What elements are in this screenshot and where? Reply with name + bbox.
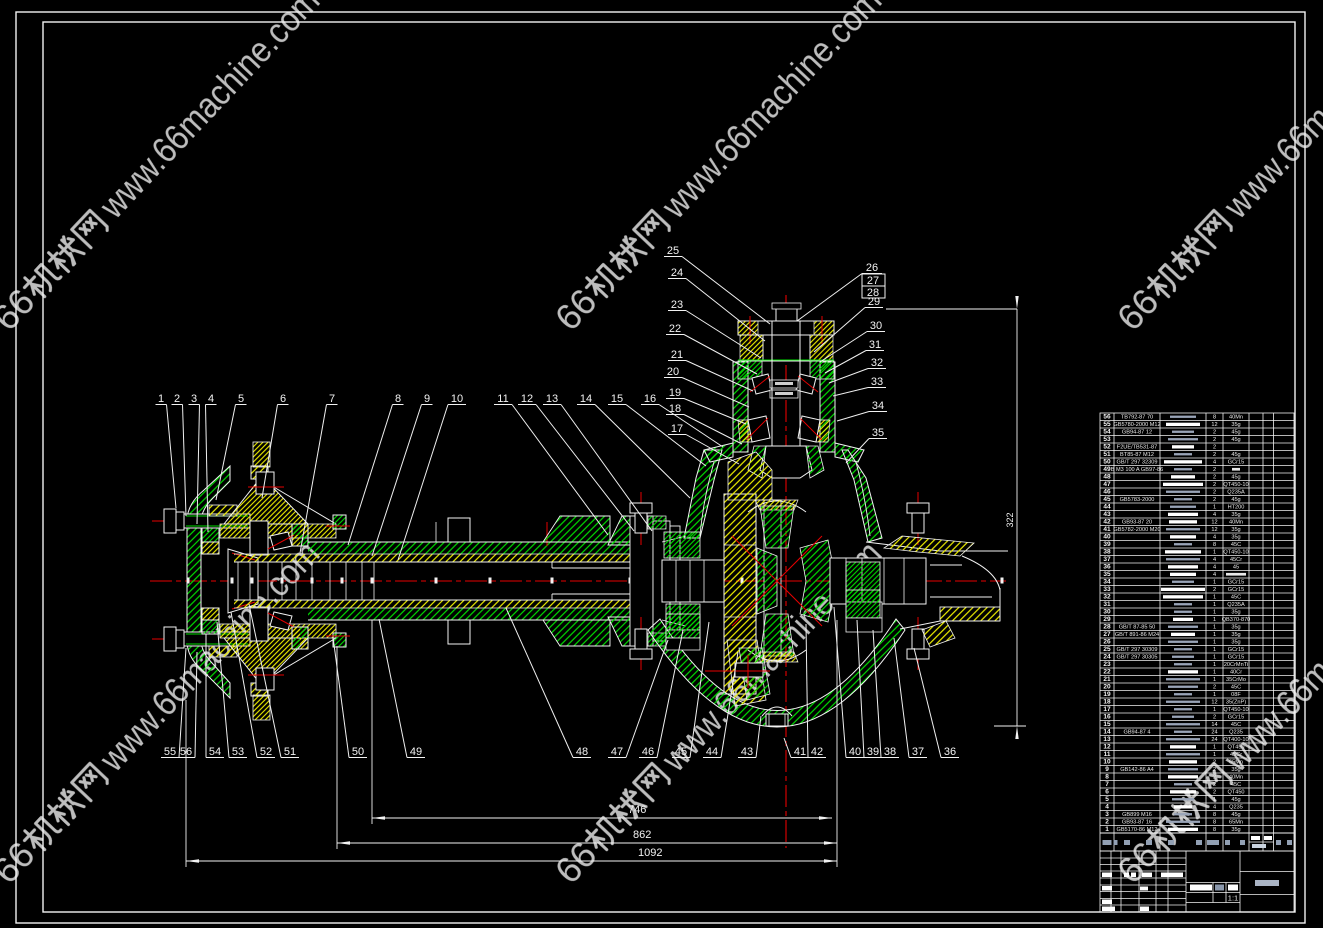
svg-text:22: 22 (1103, 669, 1111, 676)
svg-text:12: 12 (1211, 700, 1217, 706)
svg-text:26: 26 (866, 262, 878, 274)
svg-text:30: 30 (1103, 609, 1111, 616)
svg-text:45: 45 (1103, 496, 1111, 503)
svg-text:8: 8 (395, 393, 401, 405)
svg-text:12: 12 (1211, 527, 1217, 533)
svg-text:31: 31 (869, 339, 881, 351)
svg-text:45C: 45C (1231, 722, 1241, 728)
svg-text:34: 34 (1103, 579, 1111, 586)
svg-text:24: 24 (671, 267, 683, 279)
svg-text:GB899 M16: GB899 M16 (1122, 812, 1152, 818)
svg-text:9: 9 (424, 393, 430, 405)
svg-text:QT450: QT450 (1227, 790, 1244, 796)
svg-text:2: 2 (1213, 482, 1216, 488)
svg-text:56: 56 (1103, 414, 1111, 421)
svg-text:46: 46 (642, 746, 654, 758)
svg-text:1: 1 (1213, 662, 1216, 668)
svg-text:1: 1 (1105, 826, 1109, 833)
svg-text:9: 9 (1105, 766, 1109, 773)
svg-text:1: 1 (1213, 647, 1216, 653)
svg-text:GCr15: GCr15 (1228, 587, 1244, 593)
svg-text:45C: 45C (1231, 542, 1241, 548)
svg-text:4: 4 (1213, 565, 1216, 571)
svg-text:6: 6 (1105, 789, 1109, 796)
svg-text:55: 55 (164, 746, 176, 758)
svg-text:GB/T 297 30309: GB/T 297 30309 (1117, 647, 1158, 653)
svg-text:45g: 45g (1231, 797, 1240, 803)
svg-text:4: 4 (1213, 572, 1216, 578)
svg-text:2: 2 (1213, 767, 1216, 773)
svg-text:4: 4 (1213, 805, 1216, 811)
svg-text:4: 4 (1105, 804, 1109, 811)
svg-text:322: 322 (1005, 512, 1015, 527)
svg-text:45g: 45g (1231, 497, 1240, 503)
svg-text:50: 50 (352, 746, 364, 758)
svg-text:GB93-87 16: GB93-87 16 (1122, 820, 1152, 826)
svg-text:GB/T 87-85 50: GB/T 87-85 50 (1119, 625, 1156, 631)
svg-text:Q235: Q235 (1229, 805, 1243, 811)
svg-text:1: 1 (1213, 595, 1216, 601)
svg-text:36: 36 (1103, 564, 1111, 571)
svg-text:1: 1 (1213, 745, 1216, 751)
svg-text:Q235: Q235 (1229, 730, 1243, 736)
svg-text:49: 49 (410, 746, 422, 758)
svg-text:GB5170-86 M12: GB5170-86 M12 (1116, 827, 1157, 833)
svg-text:12: 12 (1103, 744, 1111, 751)
svg-text:Q235A: Q235A (1227, 602, 1245, 608)
svg-text:1: 1 (1213, 670, 1216, 676)
svg-text:B M3 100 A GB97-86: B M3 100 A GB97-86 (1111, 467, 1164, 473)
svg-text:33: 33 (1103, 586, 1111, 593)
svg-text:14: 14 (580, 393, 592, 405)
svg-text:1: 1 (1213, 752, 1216, 758)
svg-text:45: 45 (675, 746, 687, 758)
svg-text:50: 50 (1103, 459, 1111, 466)
svg-text:1: 1 (1213, 617, 1216, 623)
svg-text:8: 8 (1213, 415, 1216, 421)
svg-text:1: 1 (1213, 505, 1216, 511)
svg-text:45g: 45g (1231, 437, 1240, 443)
svg-text:GB142-86 A4: GB142-86 A4 (1120, 767, 1154, 773)
svg-text:19: 19 (669, 387, 681, 399)
svg-text:35g: 35g (1231, 610, 1240, 616)
svg-text:33: 33 (871, 376, 883, 388)
svg-text:45g: 45g (1231, 452, 1240, 458)
svg-text:12: 12 (1211, 520, 1217, 526)
svg-text:17: 17 (671, 423, 683, 435)
svg-text:GB/T 297 30305: GB/T 297 30305 (1117, 655, 1158, 661)
svg-text:BT85-87 M12: BT85-87 M12 (1120, 452, 1154, 458)
svg-text:29: 29 (1103, 616, 1111, 623)
svg-text:45Cr: 45Cr (1230, 752, 1242, 758)
svg-text:24: 24 (1211, 737, 1217, 743)
svg-text:45g: 45g (1231, 812, 1240, 818)
svg-text:15: 15 (611, 393, 623, 405)
svg-text:862: 862 (633, 829, 651, 841)
svg-text:51: 51 (284, 746, 296, 758)
svg-text:29: 29 (868, 296, 880, 308)
svg-text:65Mn: 65Mn (1229, 760, 1243, 766)
svg-text:16: 16 (1103, 714, 1111, 721)
svg-text:48: 48 (1103, 474, 1111, 481)
svg-text:40: 40 (1103, 534, 1111, 541)
svg-text:10: 10 (451, 393, 463, 405)
svg-text:2: 2 (1213, 430, 1216, 436)
svg-text:25: 25 (1103, 646, 1111, 653)
svg-text:1: 1 (1213, 610, 1216, 616)
svg-text:30: 30 (870, 320, 882, 332)
svg-text:4: 4 (1213, 512, 1216, 518)
svg-text:4: 4 (1213, 460, 1216, 466)
svg-text:QT450-10: QT450-10 (1223, 482, 1248, 488)
svg-text:37: 37 (1103, 556, 1111, 563)
svg-text:2: 2 (1213, 490, 1216, 496)
svg-text:8: 8 (1213, 827, 1216, 833)
svg-text:45C: 45C (1231, 685, 1241, 691)
svg-text:35g: 35g (1231, 535, 1240, 541)
svg-text:20CrMnTi: 20CrMnTi (1224, 662, 1248, 668)
svg-text:18: 18 (1103, 699, 1111, 706)
svg-text:53: 53 (232, 746, 244, 758)
svg-text:GB5782-2000 M20: GB5782-2000 M20 (1113, 527, 1160, 533)
svg-text:18: 18 (669, 403, 681, 415)
svg-text:47: 47 (611, 746, 623, 758)
svg-text:31: 31 (1103, 601, 1111, 608)
svg-text:2: 2 (1213, 452, 1216, 458)
svg-text:6: 6 (280, 393, 286, 405)
svg-text:1: 1 (1213, 602, 1216, 608)
svg-text:GCr15: GCr15 (1228, 580, 1244, 586)
svg-text:4: 4 (1213, 535, 1216, 541)
svg-text:8: 8 (1213, 542, 1216, 548)
svg-text:47: 47 (1103, 481, 1111, 488)
svg-text:GB94-87 12: GB94-87 12 (1122, 430, 1152, 436)
svg-text:TB792-87 70: TB792-87 70 (1121, 415, 1153, 421)
svg-text:GB/T 891-86 M24: GB/T 891-86 M24 (1115, 632, 1159, 638)
svg-text:40Mn: 40Mn (1229, 415, 1243, 421)
svg-text:5: 5 (238, 393, 244, 405)
svg-text:40Cr: 40Cr (1230, 670, 1242, 676)
svg-text:19: 19 (1103, 691, 1111, 698)
svg-text:1: 1 (158, 393, 164, 405)
svg-text:1: 1 (1213, 632, 1216, 638)
svg-text:2: 2 (1105, 819, 1109, 826)
svg-text:35g: 35g (1231, 632, 1240, 638)
svg-text:8: 8 (1213, 820, 1216, 826)
svg-text:27: 27 (867, 275, 879, 287)
svg-text:QT450: QT450 (1227, 745, 1244, 751)
svg-text:2: 2 (1213, 497, 1216, 503)
svg-text:14: 14 (1103, 729, 1111, 736)
svg-text:GCr15: GCr15 (1228, 655, 1244, 661)
svg-text:13: 13 (546, 393, 558, 405)
svg-text:23: 23 (671, 299, 683, 311)
svg-text:3: 3 (191, 393, 197, 405)
svg-text:2: 2 (1213, 445, 1216, 451)
svg-text:2: 2 (1213, 760, 1216, 766)
svg-text:2: 2 (1213, 685, 1216, 691)
svg-text:2: 2 (1213, 587, 1216, 593)
svg-text:8: 8 (1213, 812, 1216, 818)
svg-text:Q235A: Q235A (1227, 490, 1245, 496)
svg-text:4: 4 (208, 393, 214, 405)
svg-text:26: 26 (1103, 639, 1111, 646)
svg-text:35g: 35g (1231, 827, 1240, 833)
svg-text:GCr15: GCr15 (1228, 647, 1244, 653)
svg-text:45Cr: 45Cr (1230, 557, 1242, 563)
svg-text:GB94-87 4: GB94-87 4 (1123, 730, 1150, 736)
svg-text:1: 1 (1213, 692, 1216, 698)
svg-text:65Mn: 65Mn (1229, 820, 1243, 826)
svg-text:11: 11 (1104, 751, 1111, 758)
svg-text:1: 1 (1213, 640, 1216, 646)
svg-text:52: 52 (260, 746, 272, 758)
svg-text:45: 45 (1233, 565, 1239, 571)
svg-text:QB370-870: QB370-870 (1222, 617, 1251, 623)
svg-text:24: 24 (1211, 730, 1217, 736)
svg-text:1: 1 (1213, 550, 1216, 556)
svg-text:35(ZnP): 35(ZnP) (1226, 700, 1246, 706)
svg-text:2: 2 (174, 393, 180, 405)
svg-text:GB5783-2000: GB5783-2000 (1120, 497, 1155, 503)
svg-text:15: 15 (1103, 721, 1111, 728)
svg-text:32: 32 (1103, 594, 1111, 601)
svg-text:35g: 35g (1231, 625, 1240, 631)
svg-text:55: 55 (1103, 421, 1111, 428)
svg-text:46: 46 (1103, 489, 1111, 496)
svg-text:2: 2 (1213, 437, 1216, 443)
svg-text:17: 17 (1103, 706, 1111, 713)
svg-text:35g: 35g (1231, 512, 1240, 518)
svg-text:2: 2 (1213, 790, 1216, 796)
svg-text:36: 36 (944, 746, 956, 758)
svg-text:2: 2 (1213, 775, 1216, 781)
svg-text:4: 4 (1213, 557, 1216, 563)
svg-text:7: 7 (1105, 781, 1109, 788)
svg-text:53: 53 (1103, 436, 1111, 443)
svg-text:23: 23 (1103, 661, 1111, 668)
svg-text:2: 2 (1213, 475, 1216, 481)
svg-text:32: 32 (871, 357, 883, 369)
svg-text:35: 35 (1103, 571, 1111, 578)
svg-text:25: 25 (667, 245, 679, 257)
svg-text:41: 41 (1103, 526, 1111, 533)
svg-text:43: 43 (1103, 511, 1111, 518)
svg-text:22: 22 (669, 323, 681, 335)
svg-text:7: 7 (329, 393, 335, 405)
svg-text:10: 10 (1103, 759, 1111, 766)
svg-text:2: 2 (1213, 782, 1216, 788)
svg-text:HT200: HT200 (1228, 505, 1245, 511)
svg-text:1: 1 (1213, 677, 1216, 683)
svg-text:8: 8 (1105, 774, 1109, 781)
svg-text:27: 27 (1103, 631, 1111, 638)
svg-text:43: 43 (741, 746, 753, 758)
svg-text:20: 20 (1103, 684, 1111, 691)
svg-text:39: 39 (1103, 541, 1111, 548)
svg-text:40Mn: 40Mn (1229, 520, 1243, 526)
svg-text:GB/T 297 32309: GB/T 297 32309 (1117, 460, 1158, 466)
svg-text:3: 3 (1105, 811, 1109, 818)
svg-text:GB93-87 20: GB93-87 20 (1122, 520, 1152, 526)
svg-text:38: 38 (1103, 549, 1111, 556)
svg-text:GB5780-2000 M12: GB5780-2000 M12 (1113, 422, 1160, 428)
svg-text:35g: 35g (1231, 640, 1240, 646)
svg-text:20: 20 (667, 366, 679, 378)
svg-text:QT450-10: QT450-10 (1223, 707, 1248, 713)
svg-text:45g: 45g (1231, 475, 1240, 481)
svg-text:1: 1 (1213, 655, 1216, 661)
svg-text:5: 5 (1105, 796, 1109, 803)
svg-text:42: 42 (1103, 519, 1111, 526)
svg-text:35g: 35g (1231, 527, 1240, 533)
svg-text:21: 21 (1103, 676, 1111, 683)
svg-text:1: 1 (1213, 797, 1216, 803)
svg-text:41: 41 (794, 746, 806, 758)
svg-text:35g: 35g (1231, 422, 1240, 428)
svg-text:QT400-10: QT400-10 (1223, 737, 1248, 743)
svg-text:12: 12 (521, 393, 533, 405)
svg-text:24: 24 (1103, 654, 1111, 661)
svg-text:1092: 1092 (638, 847, 662, 859)
svg-text:2: 2 (1213, 715, 1216, 721)
svg-text:GCr15: GCr15 (1228, 715, 1244, 721)
svg-text:51: 51 (1103, 451, 1111, 458)
svg-text:14: 14 (1211, 722, 1217, 728)
svg-text:52: 52 (1103, 444, 1111, 451)
svg-text:08F: 08F (1231, 692, 1241, 698)
svg-text:12: 12 (1211, 422, 1217, 428)
svg-text:38: 38 (884, 746, 896, 758)
svg-text:40: 40 (849, 746, 861, 758)
svg-text:GCr15: GCr15 (1228, 460, 1244, 466)
svg-text:48: 48 (576, 746, 588, 758)
svg-text:54: 54 (209, 746, 221, 758)
svg-text:40Mn: 40Mn (1229, 775, 1243, 781)
svg-text:54: 54 (1103, 429, 1111, 436)
svg-text:746: 746 (628, 804, 646, 816)
svg-text:13: 13 (1103, 736, 1111, 743)
svg-text:F2UE/TB531-87: F2UE/TB531-87 (1117, 445, 1157, 451)
svg-text:35CrMo: 35CrMo (1226, 677, 1246, 683)
svg-text:35: 35 (872, 427, 884, 439)
svg-text:45C: 45C (1231, 595, 1241, 601)
svg-text:16: 16 (644, 393, 656, 405)
svg-text:1: 1 (1213, 625, 1216, 631)
svg-text:35g: 35g (1231, 767, 1240, 773)
svg-text:45g: 45g (1231, 430, 1240, 436)
svg-text:1: 1 (1213, 707, 1216, 713)
svg-text:2: 2 (1213, 467, 1216, 473)
svg-text:39: 39 (867, 746, 879, 758)
svg-text:44: 44 (1103, 504, 1111, 511)
svg-text:44: 44 (706, 746, 718, 758)
svg-text:21: 21 (671, 349, 683, 361)
svg-text:45C: 45C (1231, 782, 1241, 788)
svg-text:11: 11 (497, 393, 508, 405)
svg-text:1:1: 1:1 (1228, 894, 1238, 903)
svg-text:28: 28 (1103, 624, 1111, 631)
svg-text:34: 34 (872, 400, 884, 412)
svg-text:37: 37 (912, 746, 924, 758)
svg-text:42: 42 (811, 746, 823, 758)
svg-text:QT450-10: QT450-10 (1223, 550, 1248, 556)
svg-text:1: 1 (1213, 580, 1216, 586)
